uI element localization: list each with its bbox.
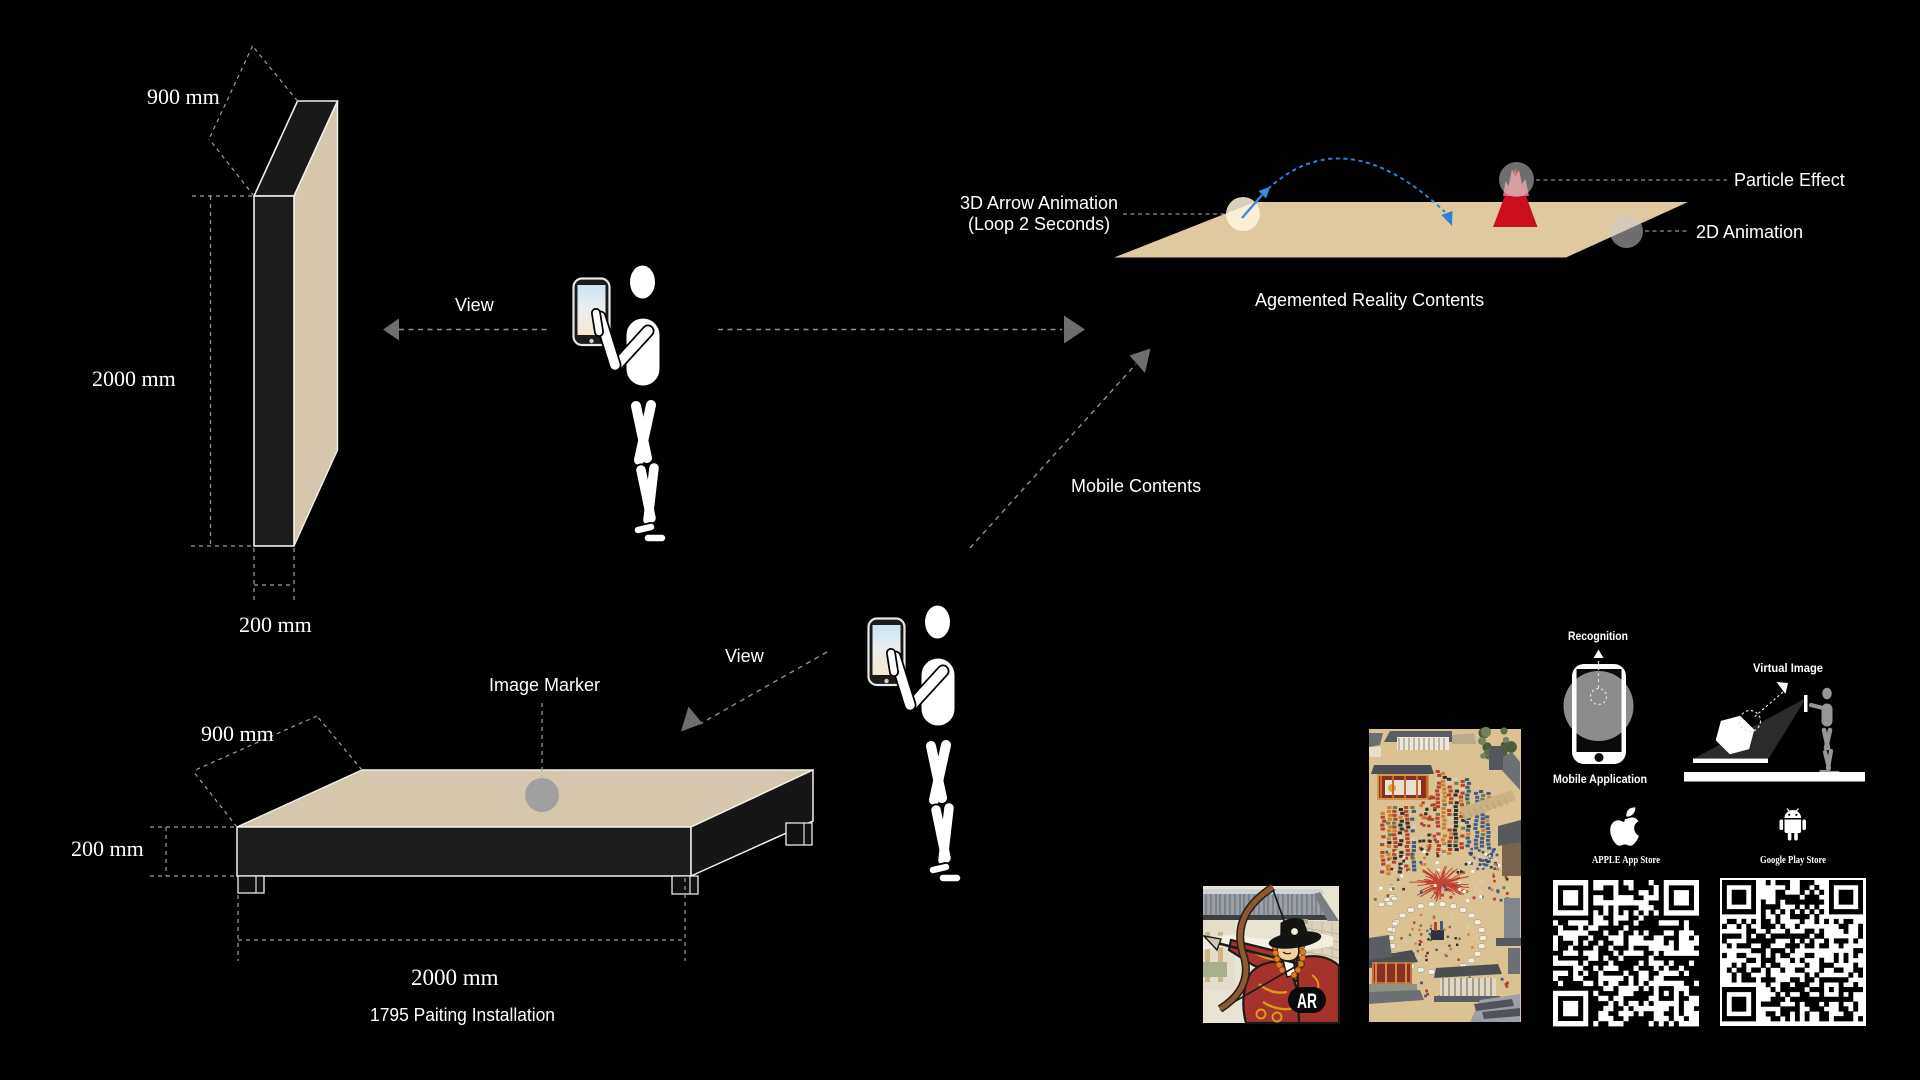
svg-text:3D Arrow Animation: 3D Arrow Animation — [960, 193, 1118, 213]
svg-text:Recognition: Recognition — [1568, 631, 1628, 643]
svg-text:Mobile Contents: Mobile Contents — [1071, 476, 1201, 496]
svg-text:AR: AR — [1297, 990, 1317, 1013]
svg-text:200 mm: 200 mm — [71, 836, 144, 861]
svg-text:View: View — [455, 295, 495, 315]
svg-text:(Loop 2 Seconds): (Loop 2 Seconds) — [968, 214, 1110, 234]
svg-text:900 mm: 900 mm — [201, 721, 274, 746]
svg-text:APPLE App Store: APPLE App Store — [1592, 854, 1660, 866]
svg-text:Particle Effect: Particle Effect — [1734, 170, 1845, 190]
svg-text:View: View — [725, 646, 765, 666]
svg-text:Virtual Image: Virtual Image — [1753, 663, 1823, 675]
svg-text:900 mm: 900 mm — [147, 84, 220, 109]
svg-text:2000 mm: 2000 mm — [411, 965, 499, 990]
svg-text:1795 Paiting Installation: 1795 Paiting Installation — [370, 1004, 555, 1025]
svg-text:Image Marker: Image Marker — [489, 675, 600, 695]
svg-text:Google Play Store: Google Play Store — [1760, 854, 1826, 866]
svg-text:200 mm: 200 mm — [239, 612, 312, 637]
svg-text:Mobile Application: Mobile Application — [1553, 774, 1647, 786]
svg-text:2D Animation: 2D Animation — [1696, 222, 1803, 242]
svg-text:2000 mm: 2000 mm — [92, 366, 176, 391]
svg-text:Agemented Reality Contents: Agemented Reality Contents — [1255, 290, 1484, 310]
